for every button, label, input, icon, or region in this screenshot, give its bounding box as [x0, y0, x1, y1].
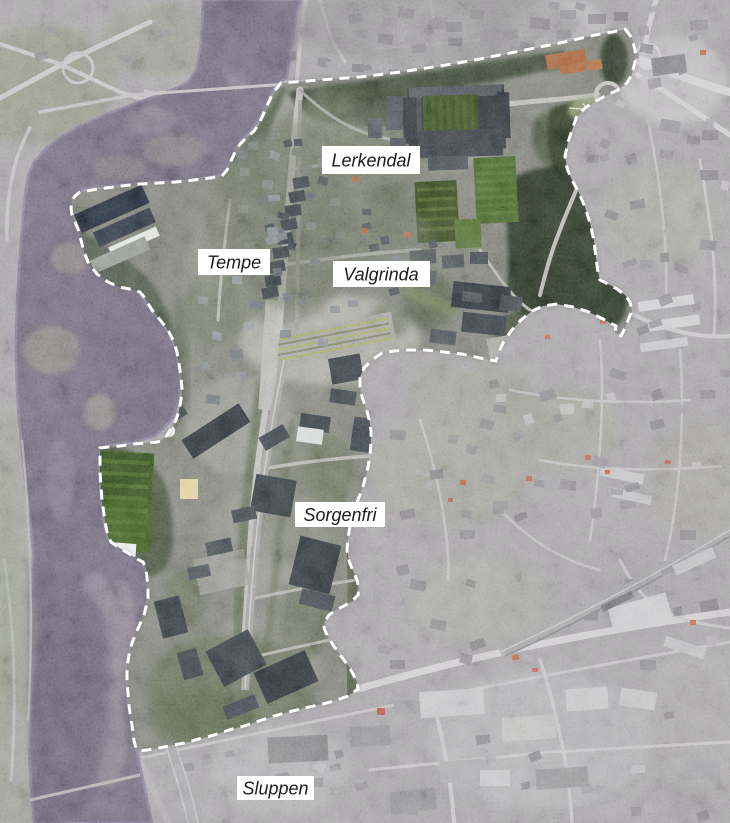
svg-text:Valgrinda: Valgrinda — [343, 265, 418, 285]
svg-text:Sluppen: Sluppen — [242, 779, 308, 799]
svg-text:Tempe: Tempe — [207, 253, 261, 273]
svg-text:Sorgenfri: Sorgenfri — [303, 505, 377, 525]
svg-text:Lerkendal: Lerkendal — [331, 151, 411, 171]
